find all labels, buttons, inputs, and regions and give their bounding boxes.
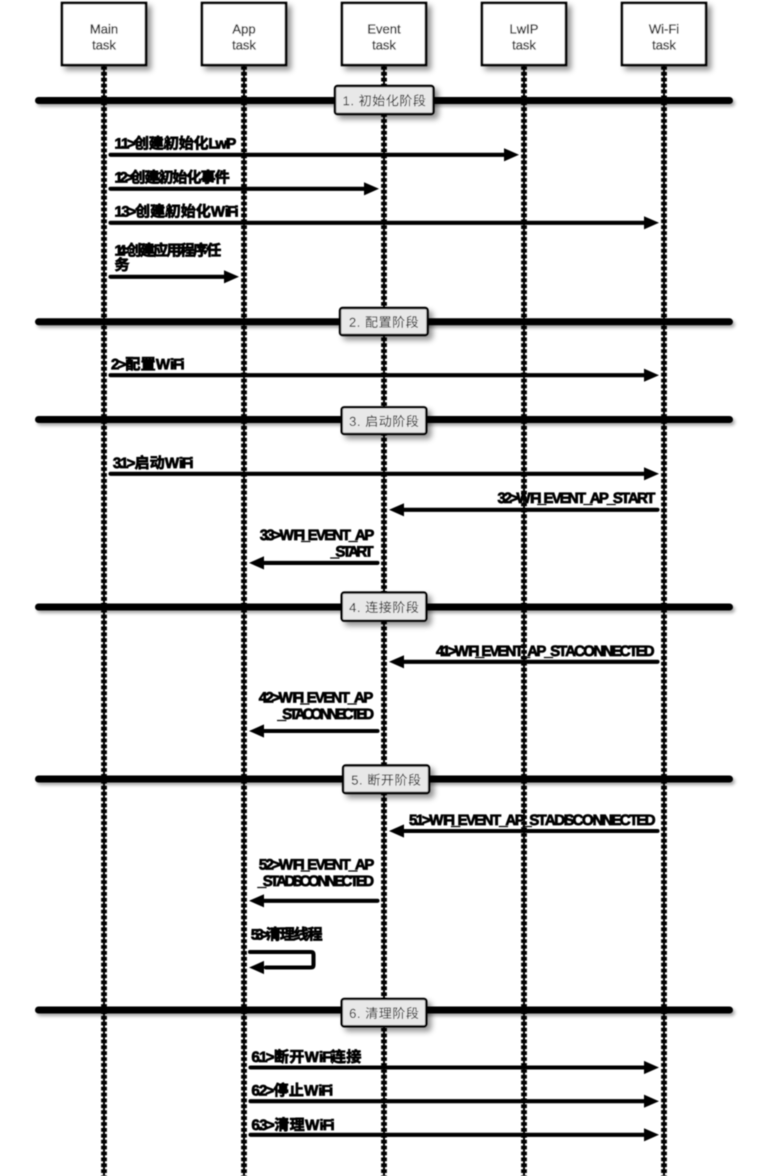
- svg-text:task: task: [652, 38, 676, 53]
- svg-text:task: task: [372, 38, 396, 53]
- svg-text:Main: Main: [90, 22, 118, 37]
- svg-text:Wi-Fi: Wi-Fi: [649, 22, 679, 37]
- svg-text:task: task: [512, 38, 536, 53]
- svg-text:Event: Event: [367, 22, 401, 37]
- svg-text:LwIP: LwIP: [510, 22, 539, 37]
- svg-text:task: task: [92, 38, 116, 53]
- svg-text:task: task: [232, 38, 256, 53]
- svg-text:App: App: [232, 22, 255, 37]
